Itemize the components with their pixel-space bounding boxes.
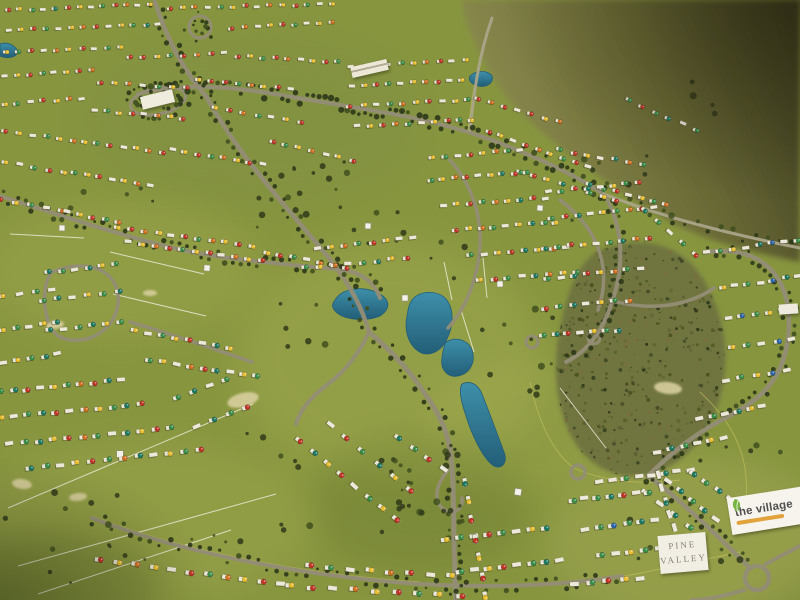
status-pin <box>470 118 475 123</box>
tree <box>279 523 283 527</box>
model-house <box>636 266 645 271</box>
status-pin <box>250 83 255 88</box>
street-tree <box>336 277 340 281</box>
street-tree <box>348 297 352 301</box>
status-pin <box>125 3 129 7</box>
status-pin <box>189 364 194 369</box>
status-pin <box>615 209 620 214</box>
street-tree <box>200 96 203 99</box>
status-pin <box>614 156 619 161</box>
model-house <box>78 435 87 441</box>
status-pin <box>496 250 501 255</box>
street-tree <box>82 226 86 230</box>
tree <box>245 432 248 435</box>
street-tree <box>614 304 617 307</box>
status-pin <box>439 59 444 64</box>
model-house <box>315 21 322 26</box>
street-tree <box>617 215 620 218</box>
model-house <box>493 250 502 255</box>
street-tree <box>103 514 107 518</box>
model-house <box>146 2 153 7</box>
street-tree <box>763 269 767 273</box>
model-house <box>469 567 479 573</box>
tree <box>407 468 412 473</box>
status-pin <box>722 285 727 290</box>
tree <box>642 172 647 177</box>
street-tree <box>699 524 704 529</box>
tree <box>396 499 402 505</box>
model-house <box>333 59 340 64</box>
status-pin <box>211 51 215 55</box>
model-house <box>595 552 605 558</box>
status-pin <box>54 410 59 415</box>
street-tree <box>16 196 20 200</box>
street-tree <box>338 107 344 113</box>
street-tree <box>422 400 427 405</box>
model-house <box>194 77 202 82</box>
tree <box>712 111 718 117</box>
street-tree <box>781 315 786 320</box>
status-pin <box>224 80 228 84</box>
street-tree <box>729 540 733 544</box>
model-house <box>424 99 432 104</box>
model-house <box>275 581 285 587</box>
model-house <box>143 331 152 337</box>
street-tree <box>137 537 142 542</box>
street-tree <box>427 125 432 130</box>
status-pin <box>139 428 145 434</box>
tree <box>533 391 539 397</box>
model-house <box>402 256 411 261</box>
model-house <box>409 79 417 84</box>
status-pin <box>196 237 201 242</box>
model-house <box>157 358 166 364</box>
street-tree <box>164 40 169 45</box>
status-pin <box>0 415 5 420</box>
tree <box>395 210 399 214</box>
status-pin <box>41 98 45 102</box>
street-tree <box>89 522 94 527</box>
street-tree <box>229 128 233 132</box>
status-pin <box>131 23 135 27</box>
street-tree <box>428 387 431 390</box>
street-tree <box>108 225 111 228</box>
status-pin <box>98 557 104 563</box>
status-pin <box>168 451 173 456</box>
status-pin <box>114 261 119 266</box>
status-pin <box>643 547 649 553</box>
status-pin <box>464 175 469 180</box>
status-pin <box>518 198 523 203</box>
model-house <box>328 2 335 7</box>
status-pin <box>28 73 33 78</box>
model-house <box>404 570 414 576</box>
tree <box>538 363 545 370</box>
status-pin <box>318 21 322 25</box>
model-house <box>646 473 656 479</box>
masterplan-model-photo: PINE VALLEY the village <box>0 0 800 600</box>
street-tree <box>198 545 202 549</box>
status-pin <box>114 3 118 7</box>
street-tree <box>357 112 361 116</box>
tree <box>532 306 539 313</box>
tree <box>529 337 533 341</box>
status-pin <box>601 210 606 215</box>
tree <box>699 514 704 519</box>
model-house <box>634 474 644 480</box>
status-pin <box>745 342 750 347</box>
street-tree <box>147 539 152 544</box>
street-tree <box>74 224 78 228</box>
status-pin <box>356 241 361 246</box>
model-house <box>370 588 381 595</box>
model-house <box>44 327 53 332</box>
status-pin <box>42 71 46 75</box>
tree <box>283 326 288 331</box>
street-tree <box>740 399 745 404</box>
tree <box>260 434 266 440</box>
street-tree <box>753 390 757 394</box>
model-house <box>617 239 625 244</box>
status-pin <box>138 453 144 459</box>
street-tree <box>125 98 128 101</box>
tree <box>449 444 452 447</box>
street-tree <box>403 375 406 378</box>
status-pin <box>389 101 394 106</box>
tree <box>637 557 641 561</box>
status-pin <box>32 26 36 30</box>
street-tree <box>711 524 715 528</box>
model-house <box>353 124 361 129</box>
tree <box>3 516 8 521</box>
street-tree <box>736 254 741 259</box>
street-tree <box>379 287 384 292</box>
status-pin <box>525 170 530 175</box>
model-house <box>5 28 13 33</box>
model-house <box>96 81 104 86</box>
status-pin <box>572 498 578 504</box>
model-house <box>372 103 380 107</box>
model-house <box>617 492 627 498</box>
street-tree <box>765 392 770 397</box>
street-tree <box>128 533 134 539</box>
model-house <box>445 79 452 83</box>
street-tree <box>161 238 166 243</box>
street-tree <box>148 83 154 89</box>
status-pin <box>621 239 626 244</box>
street-tree <box>306 240 310 244</box>
village-leaf-icon <box>727 496 746 515</box>
tree <box>605 181 609 185</box>
model-house <box>35 385 44 390</box>
status-pin <box>555 332 560 337</box>
street-tree <box>619 279 624 284</box>
status-pin <box>196 53 200 57</box>
street-tree <box>257 558 261 562</box>
street-tree <box>209 90 213 94</box>
model-house <box>462 58 469 63</box>
street-tree <box>399 108 405 114</box>
street-tree <box>718 529 722 533</box>
street-tree <box>741 551 745 555</box>
model-house <box>439 204 447 208</box>
street-tree <box>222 260 228 266</box>
model-house <box>50 7 57 11</box>
street-tree <box>364 582 368 586</box>
street-tree <box>179 80 182 83</box>
street-tree <box>777 353 782 358</box>
tree <box>334 188 337 191</box>
street-tree <box>157 544 160 547</box>
street-tree <box>203 24 208 29</box>
status-pin <box>233 254 238 259</box>
street-tree <box>651 478 655 482</box>
street-tree <box>614 263 617 266</box>
status-pin <box>91 68 95 72</box>
status-pin <box>128 55 133 60</box>
status-pin <box>20 27 24 31</box>
status-pin <box>628 207 633 212</box>
street-tree <box>524 578 527 581</box>
sand-bunker <box>143 290 157 296</box>
status-pin <box>599 300 604 305</box>
street-tree <box>297 101 303 107</box>
status-pin <box>220 5 224 9</box>
street-tree <box>226 561 229 564</box>
status-pin <box>731 344 736 349</box>
street-tree <box>311 93 315 97</box>
street-tree <box>373 326 377 330</box>
status-pin <box>48 168 53 173</box>
status-pin <box>118 111 123 116</box>
model-house <box>111 3 118 8</box>
model-house <box>176 247 185 253</box>
status-pin <box>262 84 266 88</box>
street-tree <box>457 575 462 580</box>
model-house <box>621 267 630 272</box>
street-tree <box>534 577 538 581</box>
model-house <box>271 55 279 60</box>
street-tree <box>723 534 727 538</box>
street-tree <box>669 486 673 490</box>
status-pin <box>621 492 626 497</box>
street-tree <box>747 396 751 400</box>
status-pin <box>5 50 9 54</box>
status-pin <box>458 534 464 540</box>
tree <box>698 459 702 463</box>
model-house <box>12 357 21 363</box>
status-pin <box>79 5 83 9</box>
status-pin <box>197 77 201 81</box>
model-house <box>207 51 214 56</box>
status-pin <box>223 239 228 244</box>
status-pin <box>440 177 445 182</box>
model-house <box>348 84 356 88</box>
model-house <box>486 173 494 178</box>
street-tree <box>274 569 279 574</box>
status-pin <box>604 328 609 333</box>
status-pin <box>78 381 83 386</box>
tree <box>63 506 68 511</box>
model-house <box>67 295 76 300</box>
model-house <box>246 54 254 59</box>
status-pin <box>17 50 21 54</box>
tree <box>534 384 540 390</box>
street-tree <box>286 216 289 219</box>
tree <box>190 538 193 541</box>
golf-tee-marker <box>59 225 65 231</box>
street-tree <box>157 26 161 30</box>
street-tree <box>252 160 257 165</box>
street-tree <box>352 265 356 269</box>
status-pin <box>154 244 159 249</box>
tree <box>115 493 120 498</box>
street-tree <box>593 573 598 578</box>
street-tree <box>231 145 235 149</box>
street-tree <box>166 106 170 110</box>
model-house <box>230 254 239 260</box>
model-house <box>163 245 172 251</box>
status-pin <box>412 79 416 83</box>
street-tree <box>294 573 298 577</box>
street-tree <box>204 20 208 24</box>
tree <box>339 206 343 210</box>
street-tree <box>446 488 451 493</box>
street-tree <box>380 114 384 118</box>
tree <box>326 175 332 181</box>
status-pin <box>52 384 57 389</box>
status-pin <box>277 85 281 89</box>
status-pin <box>249 54 253 58</box>
tree <box>400 230 406 236</box>
status-pin <box>125 430 131 436</box>
model-house <box>55 463 65 468</box>
street-tree <box>176 62 180 66</box>
street-tree <box>494 579 497 582</box>
tree <box>392 458 397 463</box>
street-tree <box>495 144 500 149</box>
street-tree <box>236 152 240 156</box>
status-pin <box>268 3 272 7</box>
model-house <box>303 3 310 8</box>
tree <box>399 463 403 467</box>
status-pin <box>55 319 60 324</box>
street-tree <box>412 386 417 391</box>
status-pin <box>102 291 107 296</box>
model-house <box>104 25 111 29</box>
street-tree <box>360 325 364 329</box>
tree <box>570 218 574 222</box>
model-house <box>38 71 46 76</box>
street-tree <box>214 101 217 104</box>
status-pin <box>770 240 775 245</box>
masterplan-canvas <box>0 0 800 600</box>
model-house <box>93 556 104 563</box>
street-tree <box>705 229 709 233</box>
status-pin <box>569 242 574 247</box>
model-house <box>510 172 518 177</box>
street-tree <box>766 235 770 239</box>
street-tree <box>451 130 455 134</box>
tree <box>237 538 243 544</box>
status-pin <box>157 54 161 58</box>
status-pin <box>343 243 348 248</box>
status-pin <box>308 562 314 568</box>
model-house <box>127 111 135 116</box>
street-tree <box>399 369 402 372</box>
street-tree <box>719 224 724 229</box>
street-tree <box>194 29 197 32</box>
tree <box>645 154 648 157</box>
street-tree <box>458 545 461 548</box>
status-pin <box>135 145 140 150</box>
street-tree <box>162 107 165 110</box>
model-house <box>291 4 298 9</box>
status-pin <box>430 178 435 183</box>
golf-tee-marker <box>365 223 371 229</box>
street-tree <box>207 546 212 551</box>
status-pin <box>363 102 368 107</box>
tree <box>690 92 697 99</box>
status-pin <box>95 141 100 146</box>
tree <box>293 207 299 213</box>
model-house <box>27 48 34 53</box>
model-house <box>0 74 8 79</box>
street-tree <box>662 455 665 458</box>
street-tree <box>613 255 618 260</box>
street-tree <box>707 421 710 424</box>
tree <box>305 338 311 344</box>
status-pin <box>48 327 53 332</box>
street-tree <box>388 355 393 360</box>
street-tree <box>181 99 184 102</box>
status-pin <box>286 57 291 62</box>
model-house <box>542 276 551 281</box>
tree <box>452 276 456 280</box>
status-pin <box>304 265 309 270</box>
status-pin <box>245 3 249 7</box>
tree <box>460 515 463 518</box>
street-tree <box>587 334 592 339</box>
status-pin <box>437 80 441 84</box>
street-tree <box>683 496 687 500</box>
street-tree <box>670 221 675 226</box>
status-pin <box>15 357 20 362</box>
street-tree <box>706 246 709 249</box>
model-house <box>52 295 61 301</box>
status-pin <box>556 245 561 250</box>
model-house <box>62 435 72 441</box>
model-house <box>116 377 125 382</box>
model-house <box>156 332 165 338</box>
model-house <box>153 22 160 26</box>
tree <box>550 362 553 365</box>
street-tree <box>476 127 481 132</box>
model-house <box>153 54 160 59</box>
tree <box>509 341 513 345</box>
street-tree <box>335 257 340 262</box>
status-pin <box>1 328 6 333</box>
tree <box>322 341 329 348</box>
street-tree <box>418 375 421 378</box>
status-pin <box>609 494 615 500</box>
model-house <box>139 229 147 234</box>
status-pin <box>328 565 334 571</box>
street-tree <box>550 167 556 173</box>
model-house <box>185 364 194 370</box>
street-tree <box>355 278 360 283</box>
tree <box>502 322 506 326</box>
